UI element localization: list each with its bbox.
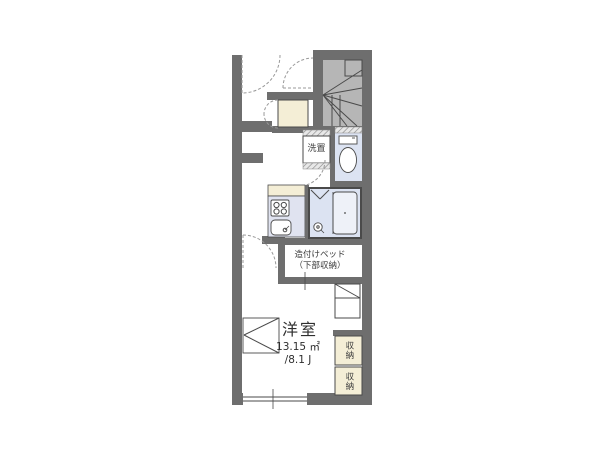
wall-toilet-bottom xyxy=(330,181,362,188)
stair-area xyxy=(323,60,362,126)
bathtub-icon xyxy=(333,192,357,234)
storage-box-1 xyxy=(335,336,362,365)
floor-plan-drawing xyxy=(0,0,600,450)
bottom-window xyxy=(243,389,307,409)
toilet-icon xyxy=(339,136,357,173)
wall-right xyxy=(362,50,372,405)
threshold-hatch-top xyxy=(303,130,330,136)
storage-closets xyxy=(335,336,362,395)
understair-counter xyxy=(335,284,360,318)
wall-storage-top xyxy=(333,330,372,336)
entry-closet-box xyxy=(278,100,308,127)
threshold-hatch-bottom xyxy=(303,163,330,169)
wall-bed-top xyxy=(285,238,362,245)
stove-icon xyxy=(271,200,289,216)
entry-door-arc xyxy=(242,55,280,93)
wall-left xyxy=(232,55,242,405)
washer-box xyxy=(303,136,330,163)
wall-closet-top xyxy=(267,92,313,100)
staircase xyxy=(323,60,362,126)
washer-space xyxy=(299,130,330,186)
openings xyxy=(243,235,307,409)
bathroom xyxy=(305,185,361,238)
floor-plan: 洗置 造付けベッド （下部収納） 洋室 13.15 ㎡ /8.1 J 収納 収納 xyxy=(0,0,600,450)
storage-box-2 xyxy=(335,367,362,395)
wall-bottom-left xyxy=(232,393,243,405)
sink-icon xyxy=(271,220,291,235)
wall-bed-bottom xyxy=(285,277,362,284)
entrance-doors xyxy=(242,55,313,93)
wall-washer-toilet xyxy=(330,133,335,183)
wall-stair-left xyxy=(313,55,323,133)
toilet-room xyxy=(335,127,362,181)
inner-door-arc xyxy=(283,58,313,88)
wall-hall-stub xyxy=(242,153,263,163)
closet-door-arc-top xyxy=(264,100,278,114)
side-window-box xyxy=(243,318,279,353)
wall-bed-left xyxy=(278,238,285,284)
kitchen xyxy=(268,185,305,237)
toilet-threshold-hatch xyxy=(335,127,362,133)
kitchen-counter xyxy=(268,185,305,196)
